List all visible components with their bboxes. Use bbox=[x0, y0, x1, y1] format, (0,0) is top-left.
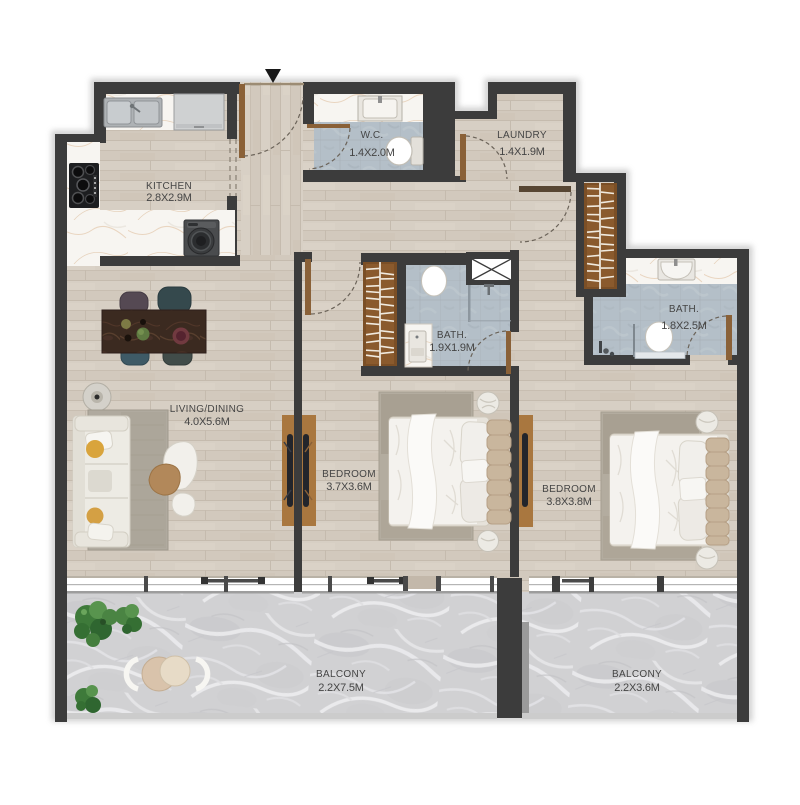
svg-text:1.4X1.9M: 1.4X1.9M bbox=[499, 146, 545, 158]
svg-text:BATH.: BATH. bbox=[437, 330, 467, 341]
svg-text:BALCONY: BALCONY bbox=[612, 669, 662, 680]
svg-text:LAUNDRY: LAUNDRY bbox=[497, 130, 547, 141]
svg-text:3.8X3.8M: 3.8X3.8M bbox=[546, 496, 592, 508]
svg-text:KITCHEN: KITCHEN bbox=[146, 181, 192, 192]
svg-text:W.C.: W.C. bbox=[361, 130, 384, 141]
svg-text:1.8X2.5M: 1.8X2.5M bbox=[661, 320, 707, 332]
svg-text:2.2X7.5M: 2.2X7.5M bbox=[318, 682, 364, 694]
svg-text:4.0X5.6M: 4.0X5.6M bbox=[184, 416, 230, 428]
svg-text:BALCONY: BALCONY bbox=[316, 669, 366, 680]
svg-text:BEDROOM: BEDROOM bbox=[322, 469, 376, 480]
svg-text:2.8X2.9M: 2.8X2.9M bbox=[146, 192, 192, 204]
svg-text:2.2X3.6M: 2.2X3.6M bbox=[614, 682, 660, 694]
svg-text:1.9X1.9M: 1.9X1.9M bbox=[429, 342, 475, 354]
svg-text:BEDROOM: BEDROOM bbox=[542, 484, 596, 495]
svg-text:3.7X3.6M: 3.7X3.6M bbox=[326, 481, 372, 493]
svg-text:1.4X2.0M: 1.4X2.0M bbox=[349, 147, 395, 159]
svg-text:LIVING/DINING: LIVING/DINING bbox=[170, 404, 244, 415]
svg-text:BATH.: BATH. bbox=[669, 304, 699, 315]
